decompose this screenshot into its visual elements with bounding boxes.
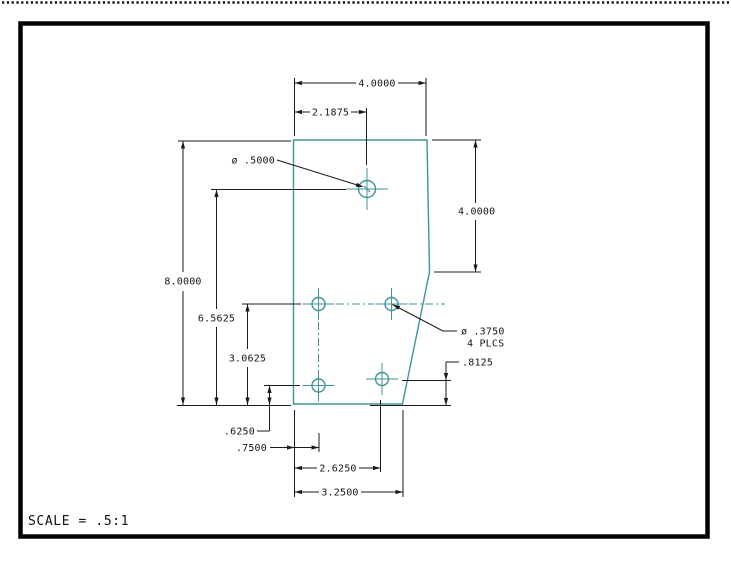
sheet-frame — [21, 24, 708, 537]
cad-window: 4.0000 2.1875 ø .5000 4.0000 8.0000 6.56… — [0, 0, 731, 564]
dim-large-hole-offset-x-label: 2.1875 — [312, 108, 349, 119]
dim-small-hole-places-label: 4 PLCS — [467, 339, 504, 350]
dim-mid-hole-row-height-label: 6.5625 — [198, 314, 235, 325]
dim-overall-width-label: 4.0000 — [358, 79, 395, 90]
dim-small-hole-diameter-label: ø .3750 — [461, 327, 505, 338]
dim-right-edge-height-label: 4.0000 — [458, 207, 495, 218]
dim-lower-right-hole-offset-x-label: 2.6250 — [319, 464, 356, 475]
dim-overall-height-label: 8.0000 — [164, 277, 201, 288]
drawing-canvas[interactable]: 4.0000 2.1875 ø .5000 4.0000 8.0000 6.56… — [0, 0, 731, 564]
dim-lower-left-hole-height-label: .6250 — [224, 427, 255, 438]
scale-note: SCALE = .5:1 — [28, 514, 129, 529]
dim-large-hole-diameter-label: ø .5000 — [231, 156, 275, 167]
dim-lower-hole-row-height-label: 3.0625 — [229, 354, 266, 365]
dim-bottom-corner-offset-x-label: 3.2500 — [321, 488, 358, 499]
dim-lower-right-hole-height-label: .8125 — [462, 358, 493, 369]
dim-lower-left-hole-offset-x-label: .7500 — [236, 443, 267, 454]
